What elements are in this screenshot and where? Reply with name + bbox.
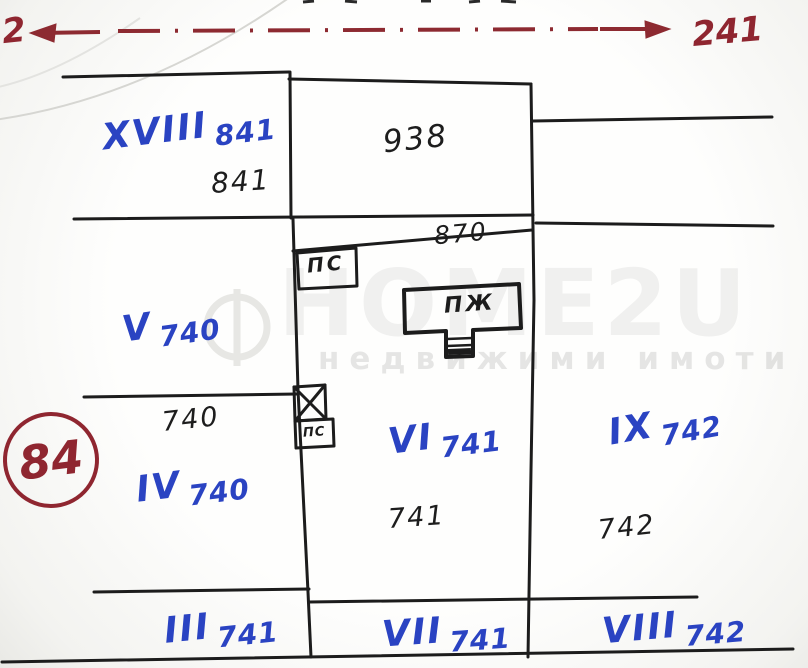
parcel-plan-no: 841: [213, 115, 277, 150]
parcel-label-iii-741: III741: [162, 602, 279, 650]
parcel-label-vii-741: VII741: [381, 609, 511, 654]
parcel-roman: IX: [605, 405, 657, 453]
parcel-plan-no: 741: [439, 427, 503, 462]
boundary-v-iv: [84, 394, 297, 397]
area-label-741: 741: [387, 502, 446, 533]
boundary-east-vertical: [528, 84, 534, 657]
parcel-roman: V: [120, 306, 155, 351]
cadastral-sketch-page: HOME2U недвижими имоти: [0, 0, 808, 668]
strip-measure-870: 870: [433, 219, 489, 249]
road-right-label: 241: [691, 12, 765, 52]
road-centerline: [30, 21, 670, 42]
boundary-top-left: [63, 72, 289, 77]
parcel-plan-no: 741: [449, 625, 512, 657]
parcel-roman: VIII: [600, 605, 679, 652]
area-label-740: 740: [161, 403, 221, 436]
road-right-arrow-icon: [645, 21, 670, 38]
outbuilding-ps-label: ПС: [306, 252, 345, 275]
boundary-step-right-top: [533, 117, 772, 121]
road-left-arrow-icon: [30, 24, 56, 42]
sketch-linework: [0, 0, 808, 668]
parcel-plan-no: 742: [684, 618, 748, 651]
parcel-roman: III: [162, 606, 212, 652]
parcel-boundaries: [2, 72, 793, 662]
top-edge-cut-marks: [303, 1, 516, 2]
boundary-step-right-bottom: [536, 223, 773, 226]
area-label-742: 742: [597, 511, 657, 544]
area-label-841: 841: [210, 166, 271, 198]
small-ps-box-label: ПС: [303, 425, 326, 440]
boundary-xviii-938: [290, 72, 291, 218]
parcel-plan-no: 740: [158, 315, 223, 351]
boundary-iv-iii: [94, 589, 309, 592]
parcel-roman: VII: [381, 610, 444, 655]
parcel-plan-no: 740: [187, 475, 251, 510]
parcel-label-v-740: V740: [120, 299, 221, 348]
parcel-label-viii-742: VIII742: [601, 602, 747, 650]
road-left-label: 2: [0, 13, 27, 49]
sketch-number: 84: [16, 429, 86, 490]
parcel-roman: VI: [386, 417, 436, 463]
parcel-roman: IV: [134, 465, 184, 511]
parcel-plan-no: 741: [216, 618, 280, 652]
area-label-938: 938: [382, 121, 450, 159]
boundary-top-938: [289, 79, 531, 84]
boundary-strip-870: [293, 230, 532, 251]
boundary-vi-vii: [309, 597, 697, 602]
building-pzh-label: ПЖ: [443, 292, 496, 318]
